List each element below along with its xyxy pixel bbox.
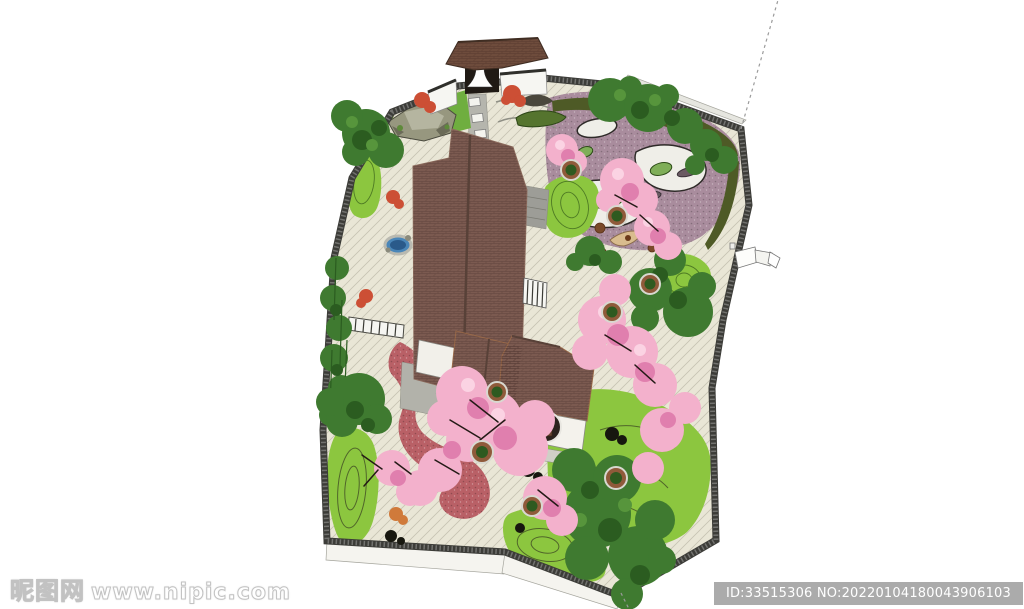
pond-basin (385, 235, 411, 254)
stock-image-preview: 昵图网www.nipic.com ID:33515306 NO:20220104… (0, 0, 1024, 609)
watermark-logo: 昵图网 (10, 577, 85, 605)
east-railing (523, 278, 547, 308)
kettle (625, 235, 631, 241)
boundary-dashed-line-top (741, 0, 778, 129)
garden-render (0, 0, 1024, 609)
watermark: 昵图网www.nipic.com (10, 571, 291, 606)
watermark-url: www.nipic.com (91, 580, 291, 605)
id-badge: ID:33515306 NO:20220104180043906103 (714, 582, 1023, 605)
